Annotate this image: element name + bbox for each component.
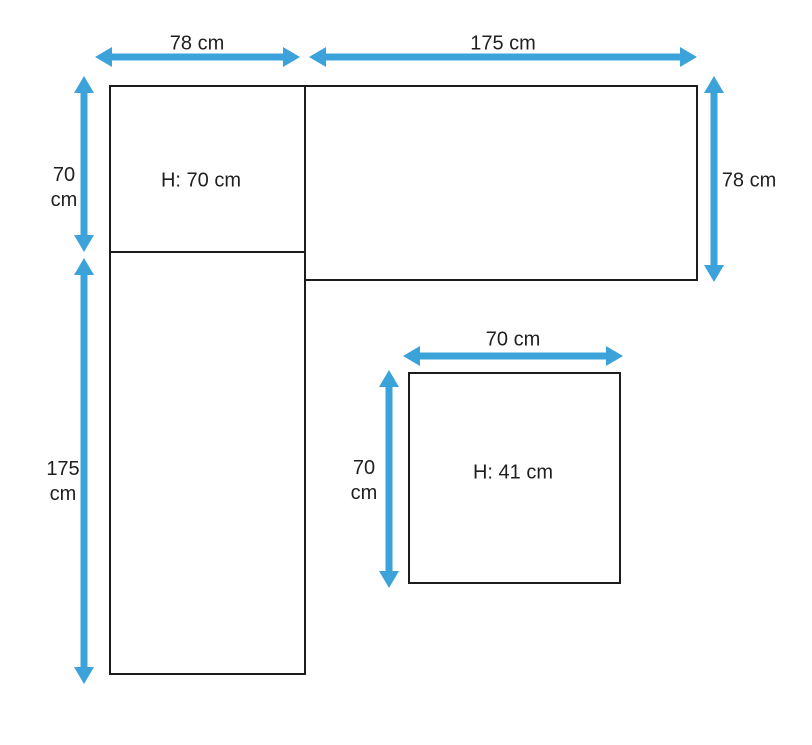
dimension-unit: cm [51,188,78,213]
dimension-arrow-table-depth [379,370,399,588]
diagram-shapes [0,0,812,745]
dimension-unit: cm [46,482,79,507]
furniture-dimension-diagram: 78 cm 175 cm 70 cm 175 cm 78 cm 70 cm 70… [0,0,812,745]
dimension-value: 70 [351,456,378,481]
dimension-unit: cm [351,481,378,506]
dimension-label-sofa-left-upper-height: 70 cm [51,163,78,213]
label-table-height: H: 41 cm [473,461,553,486]
dimension-label-table-width: 70 cm [486,328,540,353]
sofa-left-lower-section-outline [110,252,305,674]
dimension-label-table-depth: 70 cm [351,456,378,506]
sofa-right-section-outline [305,86,697,280]
dimension-label-sofa-left-lower-height: 175 cm [46,457,79,507]
label-sofa-seat-height: H: 70 cm [161,169,241,194]
dimension-label-sofa-right-width: 175 cm [470,32,536,57]
dimension-label-sofa-right-depth: 78 cm [722,169,776,194]
dimension-value: 70 [51,163,78,188]
dimension-value: 175 [46,457,79,482]
dimension-label-sofa-left-width: 78 cm [170,32,224,57]
